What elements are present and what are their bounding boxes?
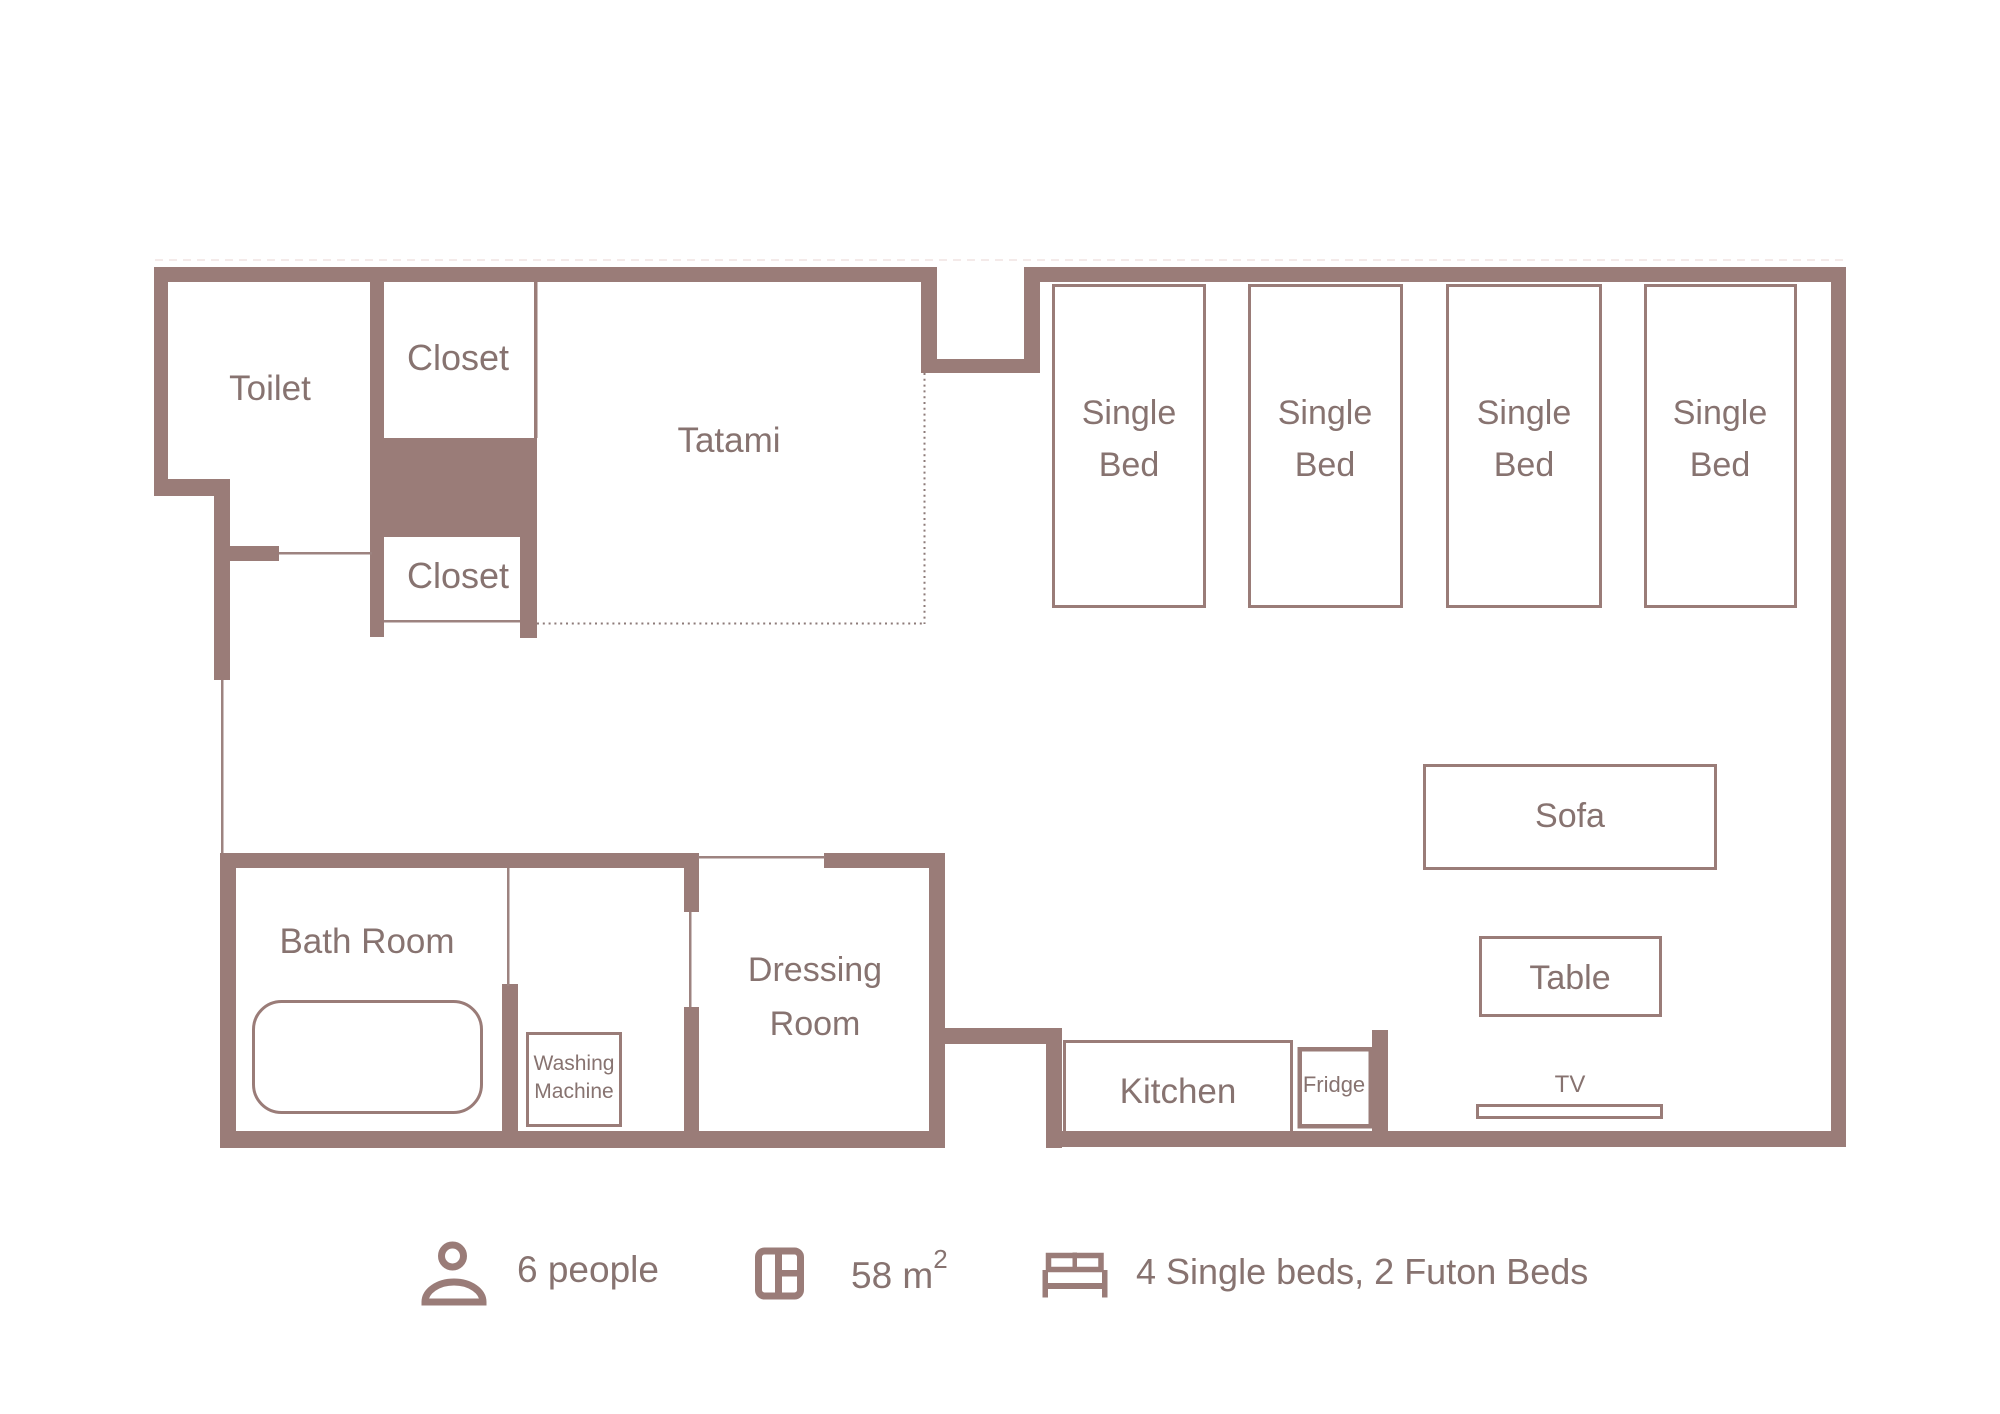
svg-text:Fridge: Fridge (1303, 1072, 1365, 1097)
svg-text:Kitchen: Kitchen (1120, 1072, 1237, 1111)
svg-text:Bath Room: Bath Room (279, 922, 454, 961)
svg-text:4 Single beds, 2 Futon Beds: 4 Single beds, 2 Futon Beds (1136, 1251, 1588, 1292)
svg-text:Closet: Closet (407, 337, 509, 378)
svg-text:Bed: Bed (1494, 446, 1555, 484)
svg-text:Single: Single (1082, 394, 1177, 432)
svg-text:TV: TV (1555, 1071, 1586, 1098)
svg-text:6 people: 6 people (517, 1249, 659, 1290)
svg-text:Table: Table (1529, 959, 1610, 997)
svg-text:Room: Room (770, 1005, 861, 1043)
svg-text:Single: Single (1673, 394, 1768, 432)
svg-text:Single: Single (1477, 394, 1572, 432)
svg-text:Single: Single (1278, 394, 1373, 432)
svg-text:Bed: Bed (1690, 446, 1751, 484)
svg-text:Bed: Bed (1295, 446, 1356, 484)
svg-text:Tatami: Tatami (677, 421, 780, 460)
svg-text:Washing: Washing (534, 1052, 615, 1075)
svg-text:Machine: Machine (534, 1080, 613, 1103)
svg-text:Closet: Closet (407, 555, 509, 596)
svg-text:Bed: Bed (1099, 446, 1160, 484)
svg-text:Sofa: Sofa (1535, 797, 1605, 835)
svg-text:Dressing: Dressing (748, 951, 882, 989)
svg-text:Toilet: Toilet (229, 369, 311, 408)
